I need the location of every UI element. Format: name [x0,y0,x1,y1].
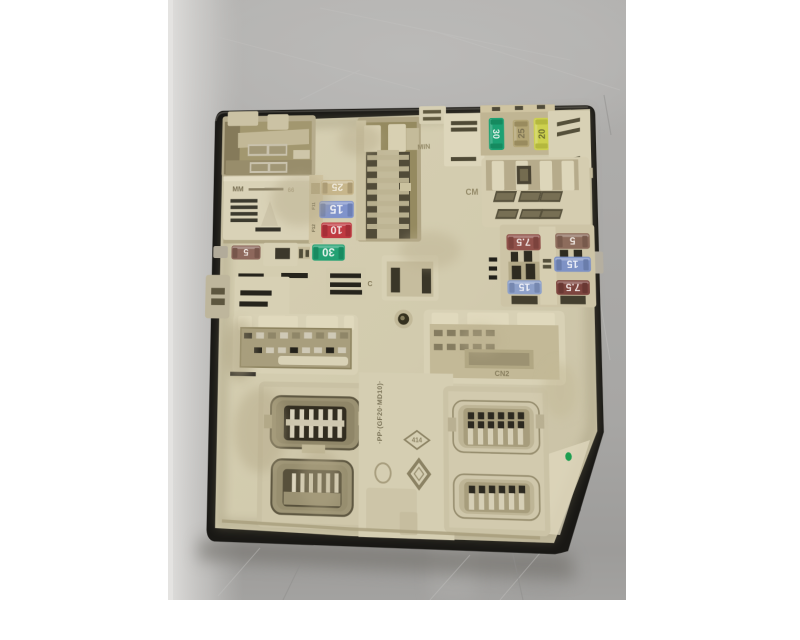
svg-text:30: 30 [322,245,335,257]
svg-text:CM: CM [466,187,479,197]
svg-text:15: 15 [567,258,579,270]
svg-text:7.5: 7.5 [566,281,581,293]
svg-text:5: 5 [570,235,576,247]
svg-text:414: 414 [412,438,422,445]
svg-text:C: C [367,280,373,288]
svg-text:7.5: 7.5 [516,236,531,247]
svg-text:5: 5 [243,247,249,258]
svg-text:MIN: MIN [417,143,431,152]
svg-text:25: 25 [331,180,343,192]
svg-text:20: 20 [537,128,547,139]
svg-text:F12: F12 [311,223,317,232]
svg-text:10: 10 [330,223,343,235]
svg-text:CN2: CN2 [495,370,510,378]
svg-text:25: 25 [516,128,526,139]
svg-text:30: 30 [491,129,501,140]
svg-text:·PP·(GF20·MD10)·: ·PP·(GF20·MD10)· [377,380,384,444]
svg-text:15: 15 [330,202,344,215]
svg-text:15: 15 [519,281,531,293]
svg-text:MM: MM [232,186,243,194]
